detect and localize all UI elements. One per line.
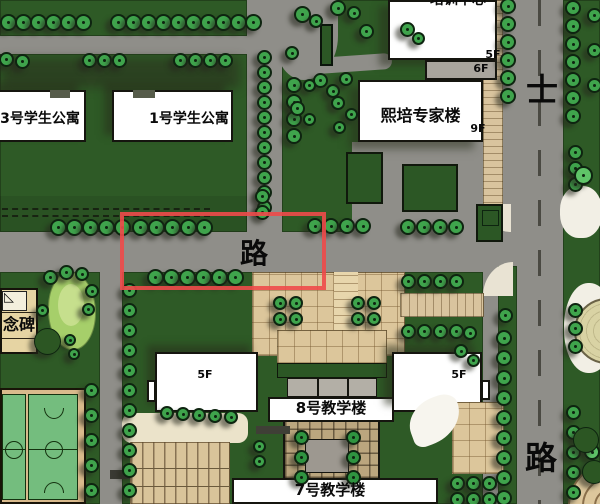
monument-line bbox=[2, 312, 36, 313]
tree-icon bbox=[257, 95, 272, 110]
highlight-box bbox=[120, 212, 326, 290]
building8-west-wing bbox=[155, 352, 258, 412]
building-label-expert: 熙培专家楼 bbox=[363, 107, 478, 125]
building-label-teaching8: 8号教学楼 bbox=[276, 400, 386, 417]
building-label-teaching7: 7号教学楼 bbox=[275, 482, 385, 499]
tree-icon bbox=[257, 185, 272, 200]
court-center-circle bbox=[5, 441, 23, 459]
garden-path-curve bbox=[560, 186, 600, 238]
tree-icon bbox=[257, 110, 272, 125]
floor-label: 6F bbox=[470, 63, 492, 76]
roof-panel-divider bbox=[317, 378, 319, 397]
lawn-far-east bbox=[563, 0, 600, 504]
terrace-step-line bbox=[130, 468, 230, 469]
building8-roof-panels bbox=[287, 378, 377, 397]
building-shadow bbox=[2, 58, 240, 88]
sidewalk-plaza-east bbox=[400, 293, 484, 317]
court-mid-line bbox=[3, 449, 25, 450]
entrance-notch bbox=[50, 90, 70, 98]
planter-bed bbox=[346, 152, 383, 204]
tree-icon bbox=[482, 476, 497, 491]
curb-corner bbox=[483, 262, 513, 296]
monument-label: 念碑 bbox=[0, 316, 38, 334]
tree-icon bbox=[257, 170, 272, 185]
tree-icon bbox=[482, 492, 497, 504]
building-label-apartment1: 1号学生公寓 bbox=[144, 111, 234, 127]
building8-east-annex bbox=[481, 380, 490, 400]
floor-label: 5F bbox=[482, 49, 504, 62]
planter-bed bbox=[402, 164, 458, 212]
building8-west-annex bbox=[147, 380, 156, 402]
tree-icon bbox=[257, 65, 272, 80]
floor-label: 5F bbox=[193, 369, 217, 382]
tree-icon bbox=[257, 50, 272, 65]
courtyard-structure bbox=[305, 439, 349, 473]
road-label-east-bottom: 路 bbox=[522, 440, 560, 477]
bench-bar bbox=[256, 426, 290, 434]
plaza-southeast bbox=[452, 402, 504, 474]
monument-line bbox=[2, 338, 36, 339]
tree-icon bbox=[257, 125, 272, 140]
roof-panel-divider bbox=[347, 378, 349, 397]
court-center-circle bbox=[45, 441, 63, 459]
building8-green-strip bbox=[277, 363, 387, 378]
building-label-apartment3: 3号学生公寓 bbox=[0, 111, 88, 127]
shrub-bed-inner bbox=[58, 284, 84, 326]
lawn-top-strip bbox=[0, 0, 247, 36]
building-label-training: 培训中心 bbox=[428, 0, 488, 8]
terrace-step-line bbox=[130, 486, 230, 487]
tree-icon bbox=[257, 155, 272, 170]
terrace-sand bbox=[122, 413, 248, 443]
floor-label: 9F bbox=[466, 123, 490, 136]
tree-icon bbox=[255, 189, 270, 204]
hedge-line bbox=[2, 208, 210, 210]
terrace-steps bbox=[130, 442, 230, 504]
park-structure bbox=[320, 24, 333, 66]
planter-inner-line bbox=[482, 210, 499, 226]
entrance-notch bbox=[133, 90, 155, 98]
tree-icon bbox=[245, 14, 262, 31]
court-mid-line bbox=[29, 449, 77, 450]
floor-label: 5F bbox=[447, 369, 471, 382]
road-label-east-top: 士 bbox=[524, 72, 560, 109]
campus-site-plan: ◺ 3号学生公寓 1号学生公寓 培训中心 5F 6F 熙培专家楼 9F 念碑 8… bbox=[0, 0, 600, 504]
tree-icon bbox=[257, 140, 272, 155]
triangle-icon: ◺ bbox=[4, 291, 14, 306]
canopy-walk bbox=[277, 330, 387, 364]
tree-icon bbox=[257, 80, 272, 95]
building-training-center bbox=[388, 0, 497, 60]
